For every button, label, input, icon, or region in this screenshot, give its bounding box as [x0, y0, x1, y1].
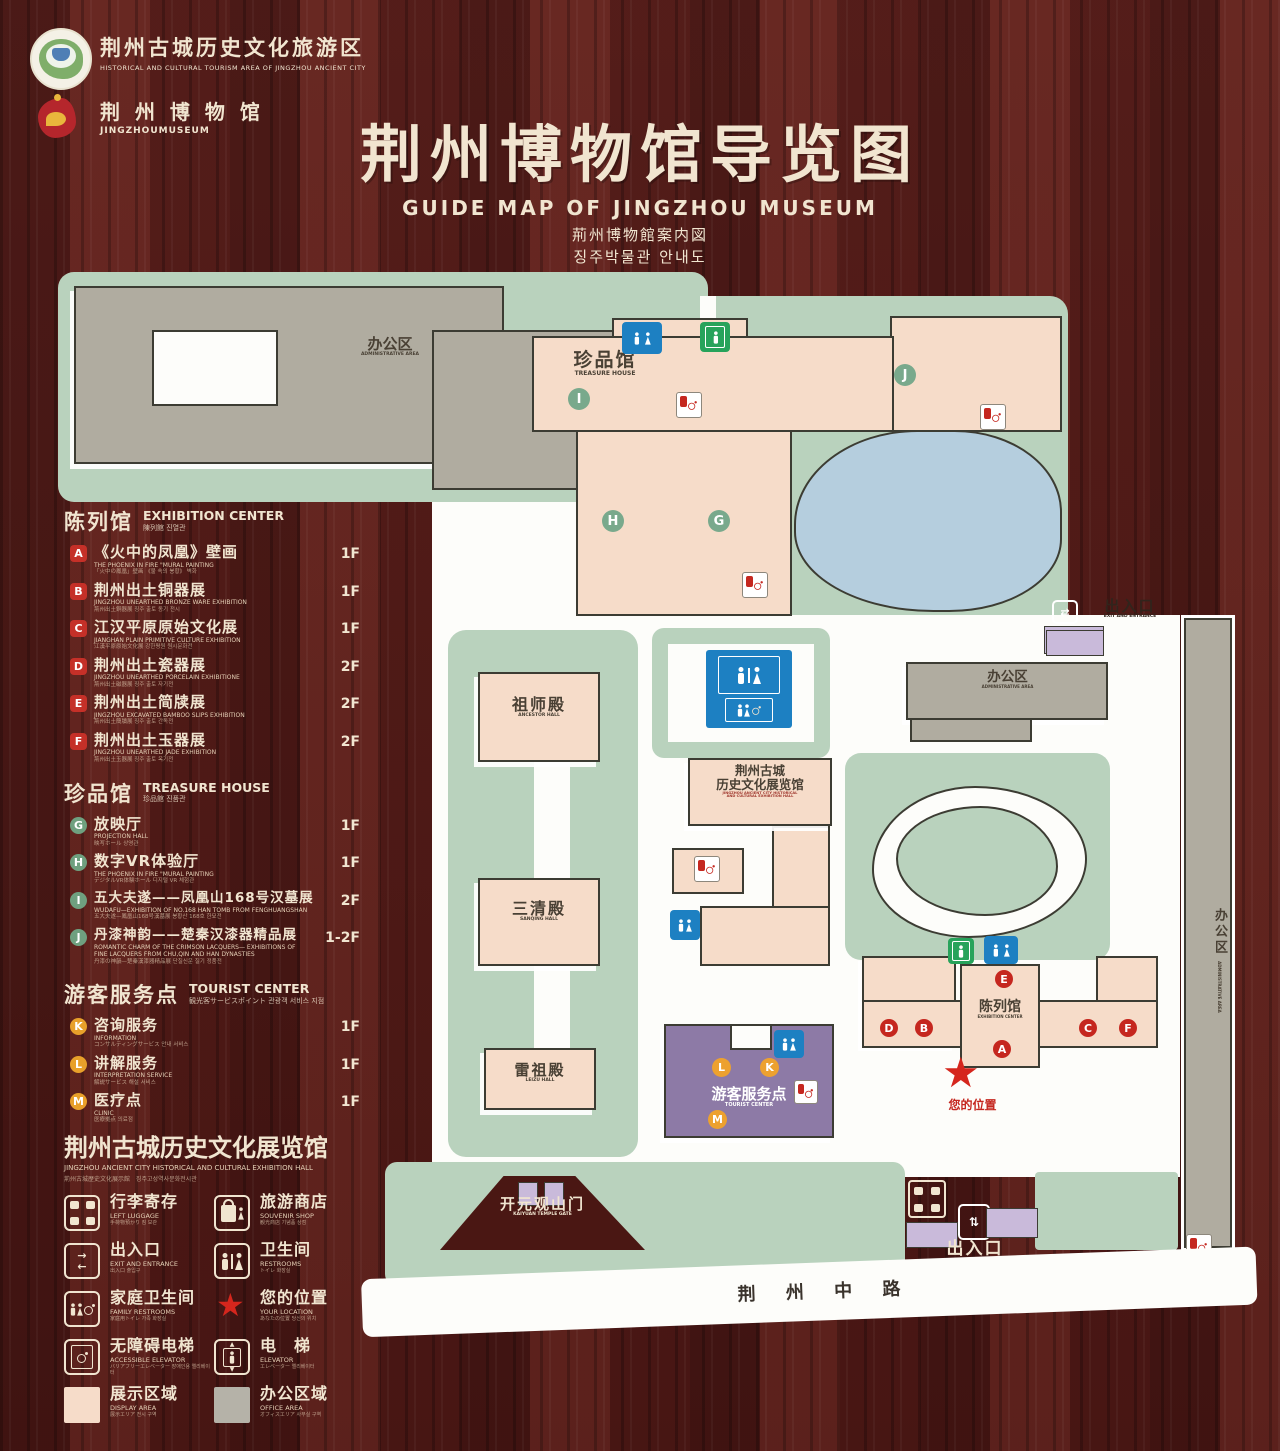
floor-badge: 1F: [341, 1057, 360, 1073]
east-entrance-label: 出入口 EXIT AND ENTRANCE: [1082, 598, 1178, 619]
tourist-center-label: 游客服务点 TOURIST CENTER: [686, 1086, 812, 1108]
map-marker-l: L: [712, 1058, 731, 1077]
floor-badge: 1F: [341, 1094, 360, 1110]
legend-item-i: I 五大夫遂——凤凰山168号汉墓展 WUDAFU—EXHIBITION OF …: [64, 891, 360, 922]
legend-your-location: ★ 您的位置 YOUR LOCATION あなたの位置 당신의 위치: [214, 1289, 360, 1337]
legend-item-f: F 荆州出土玉器展 JINGZHOU UNEARTHED JADE EXHIBI…: [64, 732, 360, 764]
accessible-elevator-icon: [64, 1339, 100, 1375]
map-marker-a: A: [993, 1040, 1011, 1058]
floor-badge: 1F: [341, 584, 360, 600]
floor-badge: 2F: [341, 659, 360, 675]
tourism-area-logo: [30, 28, 92, 90]
legend-panel: 陈列馆 EXHIBITION CENTER 陳列館 진열관 A 《火中的凤凰》壁…: [64, 492, 360, 1433]
south-entrance-plaza: [986, 1208, 1038, 1238]
map-marker-g: G: [708, 510, 730, 532]
courtyard-axis-path: [534, 962, 570, 1052]
accessible-elevator-icon: [694, 856, 720, 882]
display-area-swatch: [64, 1387, 100, 1423]
map-marker-c: C: [1079, 1019, 1097, 1037]
admin-east-label: 办公区 ADMINISTRATIVE AREA: [930, 670, 1085, 689]
admin-east-building-wing: [910, 718, 1032, 742]
legend-icon-grid: 行李寄存 LEFT LUGGAGE 手荷物預かり 짐 보관 旅游商店 SOUVE…: [64, 1193, 360, 1433]
legend-item-a: A 《火中的凤凰》壁画 THE PHOENIX IN FIRE "MURAL P…: [64, 544, 360, 576]
sanqing-hall-label: 三清殿 SANQING HALL: [478, 900, 600, 923]
legend-hall-note: 荆州古城历史文化展览馆 JINGZHOU ANCIENT CITY HISTOR…: [64, 1136, 360, 1183]
floor-badge: 1F: [341, 1019, 360, 1035]
floor-badge: 1F: [341, 855, 360, 871]
legend-item-b: B 荆州出土铜器展 JINGZHOU UNEARTHED BRONZE WARE…: [64, 582, 360, 614]
legend-souvenir-shop: 旅游商店 SOUVENIR SHOP 観光商店 기념품 상점: [214, 1193, 360, 1241]
legend-item-g: G 放映厅 PROJECTION HALL 映写ホール 상영관 1F: [64, 816, 360, 848]
museum-guide-map-sign: 荆州古城历史文化旅游区 HISTORICAL AND CULTURAL TOUR…: [0, 0, 1280, 1451]
restroom-icon: [670, 910, 700, 940]
museum-phoenix-logo-icon: [34, 92, 80, 142]
map-marker-j: J: [894, 364, 916, 386]
floor-badge: 2F: [341, 893, 360, 909]
map-marker-f: F: [1119, 1019, 1137, 1037]
legend-exit-entrance: →← 出入口 EXIT AND ENTRANCE 出入口 출입구: [64, 1241, 214, 1289]
souvenir-shop-icon: [214, 1195, 250, 1231]
your-location-star-icon: ★: [942, 1052, 980, 1094]
floor-badge: 1F: [341, 818, 360, 834]
tourism-area-wordmark: 荆州古城历史文化旅游区 HISTORICAL AND CULTURAL TOUR…: [100, 32, 580, 72]
legend-item-k: K 咨询服务 INFORMATION コンサルティングサービス 안내 서비스 1…: [64, 1017, 360, 1049]
left-luggage-icon: [908, 1180, 946, 1218]
elevator-icon: [700, 322, 730, 352]
left-luggage-icon: [64, 1195, 100, 1231]
elevator-icon: [948, 938, 974, 964]
legend-display-area: 展示区域 DISPLAY AREA 展示エリア 전시 구역: [64, 1385, 214, 1433]
legend-key-m: M: [70, 1093, 87, 1110]
phoenix-crown-dot: [54, 94, 61, 101]
legend-key-i: I: [70, 892, 87, 909]
legend-key-l: L: [70, 1056, 87, 1073]
legend-key-a: A: [70, 545, 87, 562]
admin-east-annex: [1046, 630, 1104, 656]
ancestor-hall-label: 祖师殿 ANCESTOR HALL: [478, 696, 600, 719]
tourism-area-title: 荆州古城历史文化旅游区: [100, 32, 580, 62]
history-hall-south-block: [700, 906, 830, 966]
floor-badge: 1F: [341, 621, 360, 637]
history-hall-label: 荆州古城 历史文化展览馆 JINGZHOU ANCIENT CITY HISTO…: [688, 764, 832, 799]
legend-key-h: H: [70, 854, 87, 871]
map-marker-k: K: [760, 1058, 779, 1077]
legend-section-tourist-center: 游客服务点 TOURIST CENTER 観光客サービスポイント 관광객 서비스…: [64, 979, 360, 1009]
floor-badge: 1F: [341, 546, 360, 562]
restroom-icon: [774, 1030, 804, 1058]
legend-key-f: F: [70, 733, 87, 750]
elevator-icon: ▲ ▼: [214, 1339, 250, 1375]
accessible-elevator-icon: [676, 392, 702, 418]
map-marker-i: I: [568, 388, 590, 410]
restroom-family-icon: [706, 650, 792, 728]
leizu-hall-label: 雷祖殿 LEIZU HALL: [484, 1062, 596, 1083]
office-area-swatch: [214, 1387, 250, 1423]
legend-key-j: J: [70, 929, 87, 946]
legend-item-l: L 讲解服务 INTERPRETATION SERVICE 解説サービス 해설 …: [64, 1055, 360, 1087]
road-label: 荆 州 中 路: [737, 1274, 913, 1306]
map-marker-h: H: [602, 510, 624, 532]
legend-accessible-elevator: 无障碍电梯 ACCESSIBLE ELEVATOR バリアフリーエレベーター 장…: [64, 1337, 214, 1385]
family-restroom-icon: [64, 1291, 100, 1327]
page-subtitle-en: GUIDE MAP OF JINGZHOU MUSEUM: [270, 196, 1010, 220]
page-title: 荆州博物馆导览图: [270, 104, 1010, 194]
legend-key-d: D: [70, 658, 87, 675]
your-location-star-icon: ★: [216, 1289, 245, 1321]
map-marker-e: E: [995, 970, 1013, 988]
your-location-label: 您的位置: [930, 1096, 1015, 1113]
treasure-house-label: 珍品馆 TREASURE HOUSE: [545, 350, 665, 377]
legend-key-e: E: [70, 695, 87, 712]
kaiyuan-gate-label: 开元观山门 KAIYUAN TEMPLE GATE: [460, 1196, 625, 1217]
map-marker-d: D: [880, 1019, 898, 1037]
floor-badge: 2F: [341, 734, 360, 750]
legend-left-luggage: 行李寄存 LEFT LUGGAGE 手荷物預かり 짐 보관: [64, 1193, 214, 1241]
legend-key-c: C: [70, 620, 87, 637]
restroom-icon: [622, 322, 662, 354]
legend-item-h: H 数字VR体验厅 THE PHOENIX IN FIRE "MURAL PAI…: [64, 853, 360, 885]
restroom-icon: [984, 936, 1018, 964]
accessible-elevator-icon: [980, 404, 1006, 430]
east-entrance-icon: ⇄: [1052, 600, 1078, 624]
floor-badge: 2F: [341, 696, 360, 712]
legend-family-restrooms: 家庭卫生间 FAMILY RESTROOMS 家庭用トイレ 가족 화장실: [64, 1289, 214, 1337]
legend-restrooms: 卫生间 RESTROOMS トイレ 화장실: [214, 1241, 360, 1289]
exhibition-center-label: 陈列馆 EXHIBITION CENTER: [960, 1000, 1040, 1020]
legend-key-k: K: [70, 1018, 87, 1035]
admin-nw-label: 办公区 ADMINISTRATIVE AREA: [310, 336, 470, 357]
legend-item-m: M 医疗点 CLINIC 医療拠点 의료점 1F: [64, 1092, 360, 1124]
map-marker-m: M: [708, 1110, 727, 1129]
tourist-center-notch: [730, 1024, 772, 1050]
legend-item-e: E 荆州出土简牍展 JINGZHOU EXCAVATED BAMBOO SLIP…: [64, 694, 360, 726]
map-marker-b: B: [915, 1019, 933, 1037]
legend-elevator: ▲ ▼ 电 梯 ELEVATOR エレベーター 엘리베이터: [214, 1337, 360, 1385]
floor-badge: 1-2F: [325, 930, 360, 946]
legend-section-exhibition-center: 陈列馆 EXHIBITION CENTER 陳列館 진열관: [64, 506, 360, 536]
legend-office-area: 办公区域 OFFICE AREA オフィスエリア 사무실 구역: [214, 1385, 360, 1433]
legend-key-g: G: [70, 817, 87, 834]
pond: [794, 430, 1062, 612]
south-green-block-east: [1035, 1172, 1178, 1250]
courtyard-axis-path: [534, 758, 570, 884]
accessible-elevator-icon: [742, 572, 768, 598]
legend-item-d: D 荆州出土瓷器展 JINGZHOU UNEARTHED PORCELAIN E…: [64, 657, 360, 689]
exit-entrance-icon: →←: [64, 1243, 100, 1279]
phoenix-wing-shape: [46, 112, 66, 126]
legend-key-b: B: [70, 583, 87, 600]
history-hall-wing: [772, 826, 830, 912]
admin-nw-courtyard: [152, 330, 278, 406]
restroom-icon: [214, 1243, 250, 1279]
admin-strip-label: 办公区 ADMINISTRATIVE AREA: [1188, 860, 1228, 1060]
legend-item-c: C 江汉平原原始文化展 JIANGHAN PLAIN PRIMITIVE CUL…: [64, 619, 360, 651]
page-subtitle-ko: 징주박물관 안내도: [270, 246, 1010, 267]
tourism-area-subtitle: HISTORICAL AND CULTURAL TOURISM AREA OF …: [100, 64, 580, 72]
legend-item-j: J 丹漆神韵——楚秦汉漆器精品展 ROMANTIC CHARM OF THE C…: [64, 928, 360, 965]
legend-section-treasure-house: 珍品馆 TREASURE HOUSE 珍品館 진품관: [64, 778, 360, 808]
page-subtitle-ja: 荊州博物館案内図: [270, 224, 1010, 245]
